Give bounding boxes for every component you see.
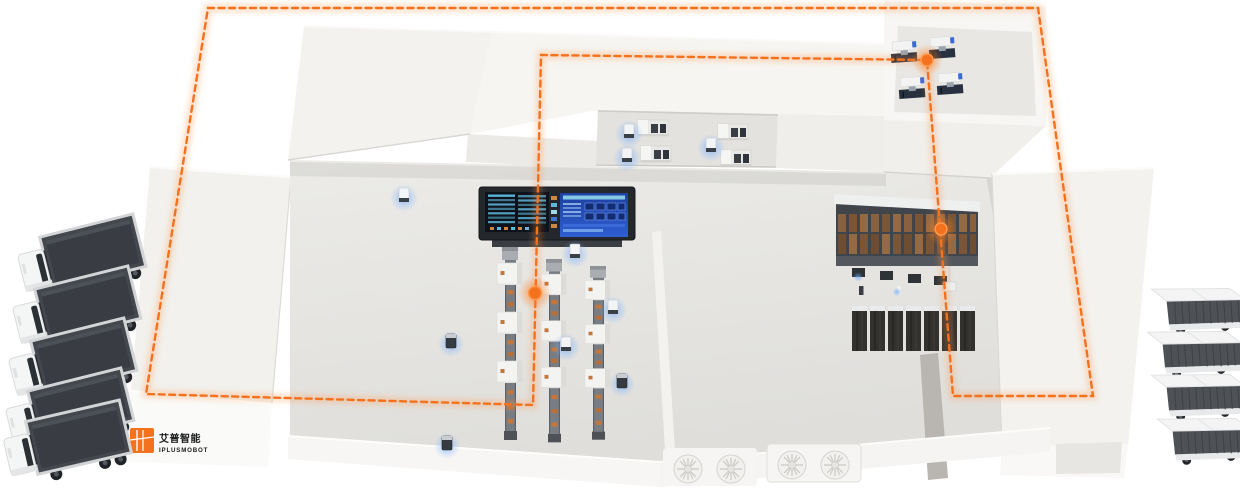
- route-waypoint-3: [925, 213, 957, 245]
- brand-logo-mark-icon: [130, 428, 154, 453]
- test-bench: [641, 146, 671, 162]
- left-annex-roof: [131, 167, 291, 403]
- hvac-fan-icon: [778, 451, 806, 479]
- agv-robot: [390, 184, 418, 212]
- upper-roofs: [288, 26, 886, 172]
- agv-robot: [561, 240, 589, 268]
- roof-right-of-room: [776, 114, 884, 172]
- right-dock-trucks: [1144, 283, 1240, 469]
- dock-truck: [1144, 326, 1240, 382]
- factory-svg: 艾普智能 IPLUSMOBOT: [0, 0, 1240, 488]
- top-right-room-floor: [894, 26, 1036, 116]
- hvac-fan-icon: [674, 455, 702, 483]
- agv-robot-dark: [434, 433, 460, 459]
- agv-robot: [613, 144, 641, 172]
- hvac-fan-icon: [717, 455, 745, 483]
- cabinet-row: [852, 306, 975, 351]
- top-right-room: [884, 0, 1046, 178]
- buildings: 艾普智能 IPLUSMOBOT: [111, 0, 1154, 487]
- agv-robot: [697, 134, 725, 162]
- test-bench: [721, 150, 751, 166]
- dock-truck: [1148, 283, 1240, 339]
- roof-step: [466, 134, 598, 168]
- agv-robot-dark: [609, 371, 635, 397]
- test-bench: [718, 124, 748, 140]
- agv-robot: [599, 296, 627, 324]
- agv-robot: [615, 120, 643, 148]
- dock-truck: [1154, 413, 1240, 469]
- agv-robot-dark: [438, 331, 464, 357]
- route-waypoint-2: [911, 44, 943, 76]
- brand-logo-cn-text: 艾普智能: [159, 432, 201, 445]
- top-right-room-roof-band: [884, 120, 1046, 178]
- left-dock-trucks: [0, 214, 148, 488]
- dock-truck: [1148, 369, 1240, 425]
- route-waypoint-1: [518, 276, 552, 310]
- rack-base: [836, 256, 978, 266]
- right-annex-door-inset: [1056, 442, 1122, 474]
- factory-scene: 艾普智能 IPLUSMOBOT: [0, 0, 1240, 488]
- central-dashboard: [479, 187, 635, 247]
- roof-top-left: [288, 26, 492, 160]
- hvac-fan-icon: [821, 451, 849, 479]
- agv-robot: [552, 333, 580, 361]
- brand-logo-en-text: IPLUSMOBOT: [159, 447, 208, 454]
- right-annex-roof: [992, 168, 1154, 449]
